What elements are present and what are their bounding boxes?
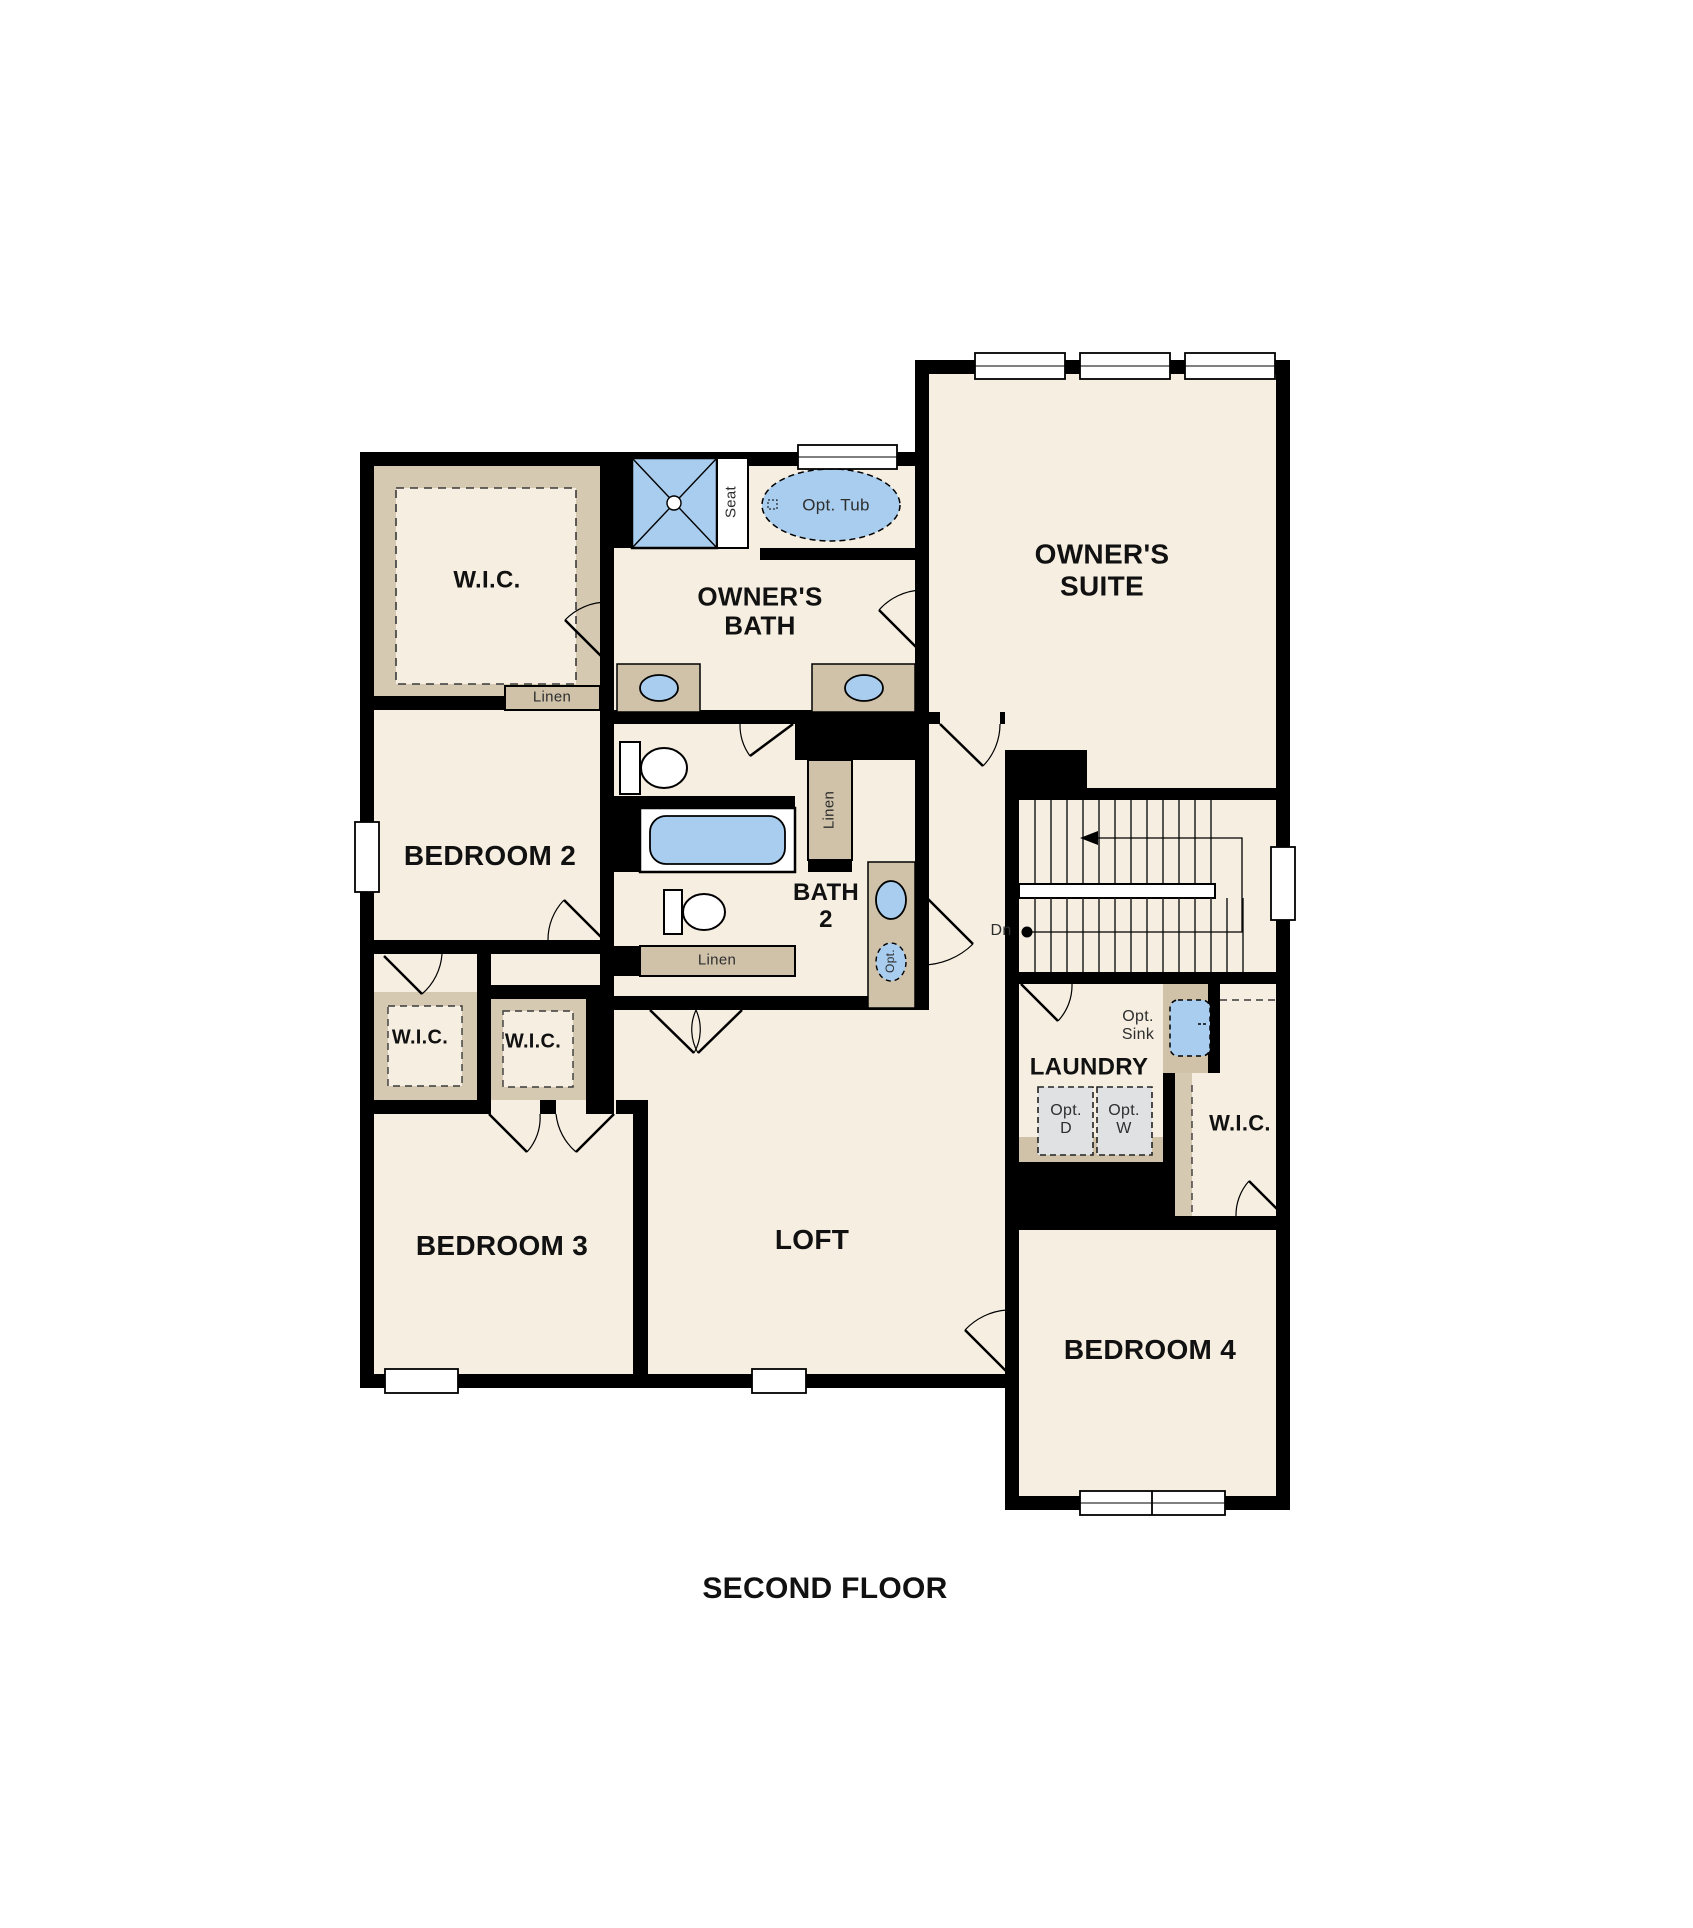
stairs-down-label: Dn bbox=[990, 922, 1011, 940]
floor-title: SECOND FLOOR bbox=[702, 1572, 947, 1606]
laundry-optional-sink bbox=[1170, 1000, 1210, 1056]
linen-bath2-label: Linen bbox=[698, 953, 736, 970]
opt-dryer-label: Opt. D bbox=[1050, 1102, 1081, 1138]
window-loft bbox=[752, 1369, 806, 1393]
wic-bedroom4-label: W.I.C. bbox=[1209, 1112, 1271, 1137]
wic-bedroom3-label: W.I.C. bbox=[505, 1031, 561, 1054]
wic-bedroom4-shelving bbox=[1175, 1073, 1192, 1216]
wic-bedroom2-label: W.I.C. bbox=[392, 1027, 448, 1050]
bedroom4-label: BEDROOM 4 bbox=[1064, 1334, 1236, 1366]
bedroom3-label: BEDROOM 3 bbox=[416, 1230, 588, 1262]
sink-bath2 bbox=[876, 881, 906, 919]
floor-plan-drawing bbox=[0, 0, 1693, 1928]
bath2-label: BATH 2 bbox=[793, 879, 859, 933]
opt-tub-label: Opt. Tub bbox=[802, 495, 870, 514]
bathtub-bath2 bbox=[640, 808, 795, 872]
toilet-bath2 bbox=[664, 890, 725, 934]
opt-sink-bath2-label: Opt. bbox=[884, 949, 898, 973]
loft-label: LOFT bbox=[775, 1224, 849, 1256]
stair-landing bbox=[1019, 884, 1215, 898]
opt-washer-label: Opt. W bbox=[1108, 1102, 1139, 1138]
bedroom2-label: BEDROOM 2 bbox=[404, 840, 576, 872]
seat-label: Seat bbox=[724, 486, 741, 518]
sink-owners-right bbox=[845, 675, 883, 701]
window-stair bbox=[1271, 847, 1295, 920]
owners-suite-label: OWNER'S SUITE bbox=[1035, 538, 1170, 601]
opt-sink-laundry-label: Opt. Sink bbox=[1122, 1008, 1154, 1044]
window-bedroom3 bbox=[385, 1369, 458, 1393]
linen-wic-label: Linen bbox=[533, 690, 571, 707]
linen-hall-label: Linen bbox=[822, 791, 839, 829]
shower bbox=[632, 458, 717, 548]
floor-plan-page: W.I.C. Linen OWNER'S BATH Seat Opt. Tub … bbox=[0, 0, 1693, 1928]
sink-owners-left bbox=[640, 675, 678, 701]
owners-bath-label: OWNER'S BATH bbox=[697, 583, 822, 642]
window-bedroom2 bbox=[355, 822, 379, 892]
laundry-label: LAUNDRY bbox=[1030, 1053, 1149, 1080]
wic-owner-label: W.I.C. bbox=[453, 566, 520, 593]
